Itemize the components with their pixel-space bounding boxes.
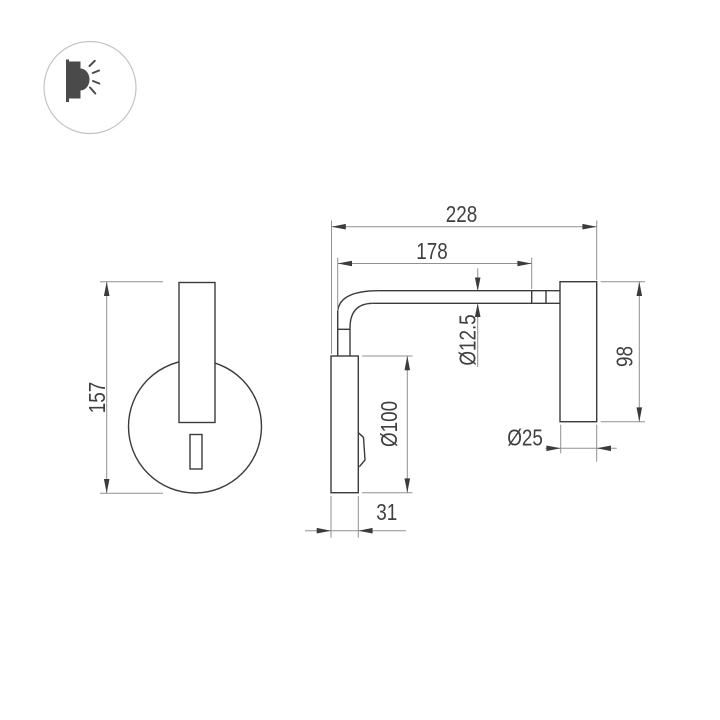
dim-head-diameter: Ø25 — [507, 425, 617, 462]
dim-head-length: 98 — [601, 282, 645, 422]
front-lamp-body — [179, 283, 215, 423]
side-view — [331, 282, 597, 493]
dim-label-178: 178 — [416, 239, 447, 264]
wall-lamp-glow-icon — [44, 42, 136, 134]
side-elbow-outer — [338, 291, 379, 313]
dim-label-157: 157 — [85, 382, 110, 413]
dim-plate-diameter: Ø100 — [362, 356, 413, 493]
dim-label-31: 31 — [376, 500, 397, 525]
front-switch — [190, 435, 202, 470]
dim-plate-depth: 31 — [305, 496, 406, 538]
drawing-canvas: 157 228 178 — [0, 0, 720, 720]
lamp-dimension-drawing: 157 228 178 — [0, 0, 720, 720]
dim-label-plate-diameter: Ø100 — [377, 401, 402, 447]
side-lamp-head — [560, 282, 597, 422]
dim-label-tube-diameter: Ø12.5 — [456, 314, 481, 365]
dim-label-head-diameter: Ø25 — [507, 426, 543, 451]
side-wall-plate — [331, 356, 358, 493]
front-view — [129, 283, 262, 494]
dim-arm-length: 178 — [338, 239, 532, 311]
side-elbow-inner — [350, 303, 373, 328]
dim-tube-diameter: Ø12.5 — [456, 268, 481, 367]
dim-label-228: 228 — [446, 202, 477, 227]
side-switch — [358, 433, 365, 467]
dim-label-98: 98 — [613, 346, 638, 367]
icon-lamp-base — [69, 62, 81, 99]
icon-wall-bar — [66, 60, 69, 103]
